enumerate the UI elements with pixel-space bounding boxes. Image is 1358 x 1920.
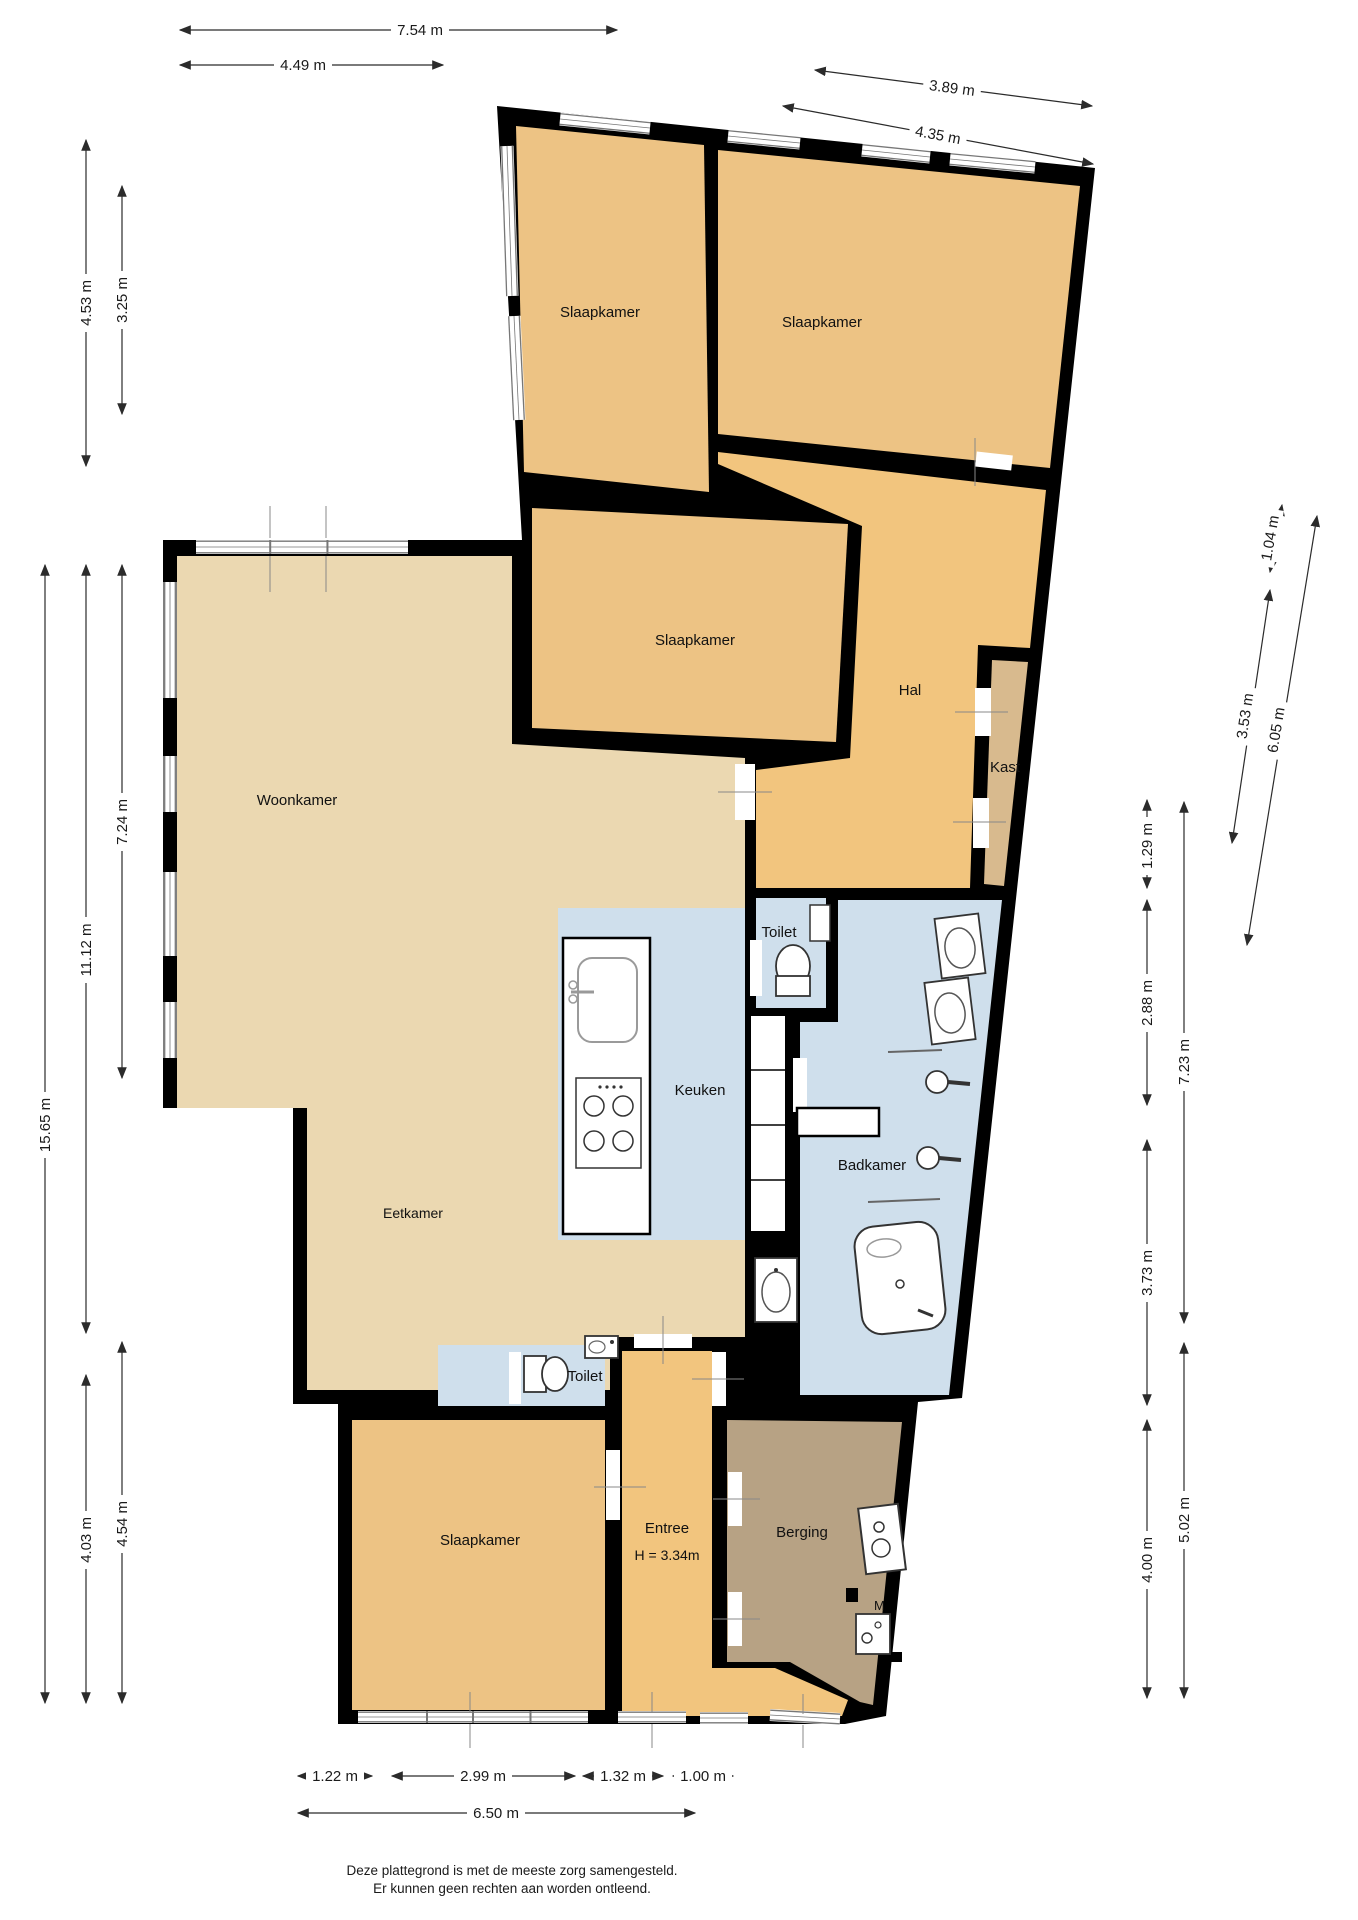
dimension-label-group: 6.05 m [1262,700,1289,760]
room-label-hal: Hal [899,682,922,699]
dimension-label: 3.73 m [1139,1250,1156,1296]
dimension-label: 4.49 m [280,57,326,74]
window-opening [618,1712,686,1722]
room-slaapkamer-3 [532,508,848,742]
room-label-keuken: Keuken [675,1082,726,1099]
room-slaapkamer-4 [352,1420,605,1710]
room-label-entree: Entree [645,1520,689,1537]
room-label-toilet-beneden: Toilet [567,1368,603,1385]
dimension-1.22m: 1.22 m [298,1767,372,1785]
dimension-3.25m: 3.25 m [113,186,131,414]
dimension-label: 7.24 m [114,799,131,845]
dimension-3.53m: 3.53 m [1232,590,1270,843]
room-label-slaapkamer-4: Slaapkamer [440,1532,520,1549]
shower-tap [939,1158,961,1160]
dimension-label: 6.05 m [1264,706,1288,754]
dimension-label: 1.00 m [680,1768,726,1785]
dimension-7.24m: 7.24 m [113,565,131,1078]
dimension-label-group: 15.65 m [36,1092,54,1158]
dimension-3.73m: 3.73 m [1138,1140,1156,1405]
dimension-6.05m: 6.05 m [1247,516,1317,945]
dimension-4.03m: 4.03 m [77,1375,95,1703]
kitchen-cabinets [750,1015,786,1232]
room-label-berging: Berging [776,1524,828,1541]
dimension-label-group: 7.54 m [391,21,449,39]
dimension-label-group: 6.50 m [467,1804,525,1822]
window-opening [165,756,176,812]
dimension-label: 3.89 m [928,77,976,100]
room-label2-entree: H = 3.34m [635,1547,700,1563]
shower-tap [948,1082,970,1084]
dimension-label-group: 2.88 m [1138,974,1156,1032]
room-label-slaapkamer-3: Slaapkamer [655,632,735,649]
window-opening [700,1713,748,1723]
room-label-badkamer: Badkamer [838,1157,906,1174]
dimension-label-group: 3.73 m [1138,1244,1156,1302]
knob [612,1085,615,1088]
dimension-label: 1.29 m [1139,823,1156,869]
room-label-woonkamer-eetkamer: Woonkamer [257,792,338,809]
cooktop [576,1078,641,1168]
dimension-label: 7.54 m [397,22,443,39]
dimension-1.32m: 1.32 m [583,1767,663,1785]
dimension-label-group: 4.35 m [908,121,968,149]
door-opening [976,459,1012,463]
floor-plan-svg: M SlaapkamerSlaapkamerSlaapkamerHalKastW… [0,0,1358,1920]
dimension-label-group: 4.49 m [274,56,332,74]
dimension-label: 11.12 m [78,923,95,976]
dimension-label: 4.54 m [114,1501,131,1547]
toilet-bowl [542,1357,568,1391]
dimension-label-group: 3.89 m [922,75,982,100]
room-label-kast: Kast [990,759,1021,776]
dimension-label-group: 3.53 m [1232,686,1258,746]
dimension-label-group: 1.04 m [1256,508,1284,568]
washbasin [935,914,986,979]
room-label-slaapkamer-1: Slaapkamer [560,304,640,321]
bathtub [853,1220,948,1336]
dimension-2.99m: 2.99 m [392,1767,575,1785]
meter-nook-wall [846,1588,858,1602]
room-label2-woonkamer-eetkamer: Eetkamer [383,1205,443,1221]
kitchen-sink [578,958,637,1042]
disclaimer-line-2: Er kunnen geen rechten aan worden ontlee… [373,1881,651,1896]
dimension-label: 2.88 m [1139,980,1156,1026]
dimension-1.00m: 1.00 m [673,1767,733,1785]
dimension-label-group: 1.22 m [306,1767,364,1785]
dimension-2.88m: 2.88 m [1138,900,1156,1105]
window-opening [165,582,176,698]
dimension-4.49m: 4.49 m [180,56,443,74]
dimension-11.12m: 11.12 m [77,565,95,1333]
meter-label: M [874,1598,885,1613]
basin-tap [610,1340,614,1344]
partition-wall [797,1108,879,1136]
washbasin [585,1336,618,1358]
dimension-15.65m: 15.65 m [36,565,54,1703]
dimension-7.23m: 7.23 m [1175,802,1193,1323]
dimension-label-group: 1.32 m [594,1767,652,1785]
dimension-label: 6.50 m [473,1805,519,1822]
dimension-5.02m: 5.02 m [1175,1343,1193,1698]
dimension-label: 2.99 m [460,1768,506,1785]
dimension-label: 4.03 m [78,1517,95,1563]
dimension-3.89m: 3.89 m [815,70,1092,106]
dimension-label-group: 11.12 m [77,917,95,983]
dimension-label-group: 2.99 m [454,1767,512,1785]
dimension-4.53m: 4.53 m [77,140,95,466]
basin-tap [774,1268,778,1272]
dimension-label-group: 4.00 m [1138,1531,1156,1589]
washer [856,1614,890,1654]
dimension-label: 7.23 m [1176,1039,1193,1085]
dimension-label: 4.35 m [914,123,962,148]
dimension-label-group: 4.54 m [113,1495,131,1553]
room-label-slaapkamer-2: Slaapkamer [782,314,862,331]
toilet-seat [776,976,810,996]
dimension-label: 1.32 m [600,1768,646,1785]
dimension-7.54m: 7.54 m [180,21,617,39]
floor-plan-page: M SlaapkamerSlaapkamerSlaapkamerHalKastW… [0,0,1358,1920]
dimension-label-group: 7.24 m [113,793,131,851]
window-opening [165,1002,176,1058]
dimension-label-group: 4.53 m [77,274,95,332]
dimension-label: 3.53 m [1234,692,1258,740]
room-label-toilet-boven: Toilet [761,924,797,941]
dimension-label: 1.04 m [1258,514,1283,562]
dimension-label: 15.65 m [37,1098,54,1152]
dimension-1.29m: 1.29 m [1138,800,1156,888]
dimension-label: 1.22 m [312,1768,358,1785]
washbasin [924,978,975,1045]
shower-tap [917,1147,939,1169]
disclaimer-line-1: Deze plattegrond is met de meeste zorg s… [347,1863,678,1878]
dimension-label-group: 7.23 m [1175,1033,1193,1091]
room-slaapkamer-2 [718,150,1080,468]
knob [598,1085,601,1088]
dimension-label-group: 5.02 m [1175,1491,1193,1549]
dimension-6.50m: 6.50 m [298,1804,695,1822]
dimension-label-group: 1.29 m [1138,817,1156,875]
door-band [976,459,1012,463]
dimension-4.00m: 4.00 m [1138,1420,1156,1698]
dimension-label-group: 3.25 m [113,271,131,329]
dimension-4.54m: 4.54 m [113,1342,131,1703]
shower-tap [926,1071,948,1093]
dimension-label: 4.53 m [78,280,95,326]
window-opening [358,1711,588,1723]
knob [605,1085,608,1088]
dimension-label-group: 4.03 m [77,1511,95,1569]
dimension-label: 4.00 m [1139,1537,1156,1583]
knob [619,1085,622,1088]
dimension-1.04m: 1.04 m [1256,505,1284,572]
dimension-label-group: 1.00 m [674,1767,732,1785]
dimension-label: 3.25 m [114,277,131,323]
cistern [810,905,830,941]
dimension-label: 5.02 m [1176,1497,1193,1543]
window-opening [196,540,408,554]
window-opening [165,872,176,956]
